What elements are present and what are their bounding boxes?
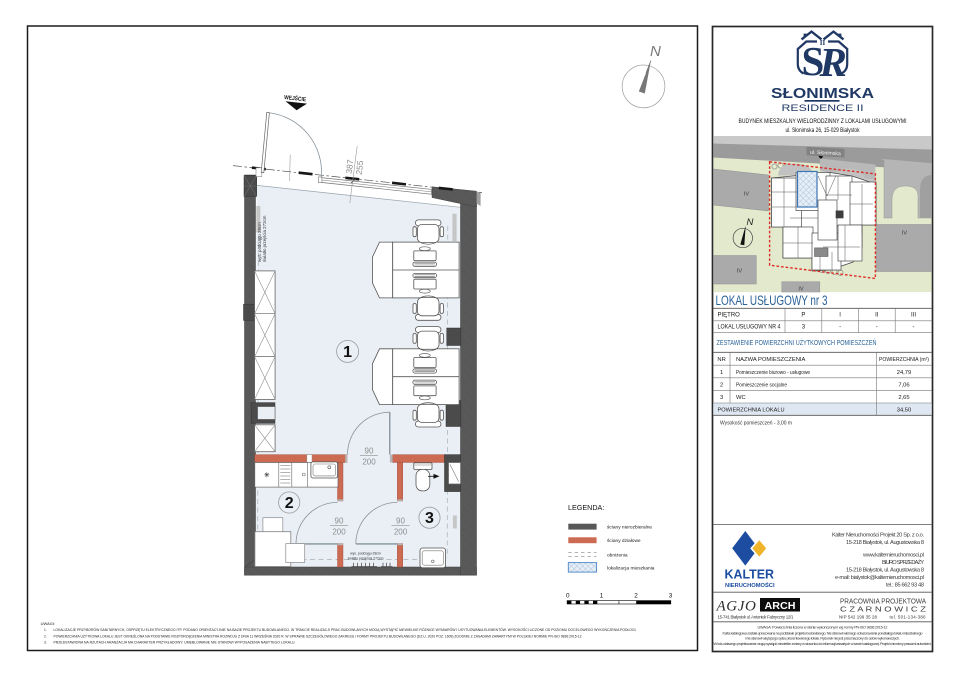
svg-text:wys. podciągu 28cm: wys. podciągu 28cm xyxy=(350,552,381,556)
svg-text:NR: NR xyxy=(717,357,725,363)
svg-text:200: 200 xyxy=(332,528,346,537)
svg-text:e-mail: bialystok@kalternieruc: e-mail: bialystok@kalternieruchomosci.pl xyxy=(835,575,924,581)
svg-text:P: P xyxy=(801,313,805,319)
svg-text:ściany działowe: ściany działowe xyxy=(607,538,641,544)
svg-text:NIP 542 199 35 28: NIP 542 199 35 28 xyxy=(839,615,878,620)
svg-text:SŁONIMSKA: SŁONIMSKA xyxy=(771,86,875,102)
svg-text:-: - xyxy=(913,325,915,331)
svg-text:POWIERZCHNIA LOKALU: POWIERZCHNIA LOKALU xyxy=(718,408,785,414)
svg-text:2: 2 xyxy=(720,382,723,388)
svg-text:Pomieszczenie socjalne: Pomieszczenie socjalne xyxy=(736,382,787,388)
svg-text:NIERUCHOMOŚCI: NIERUCHOMOŚCI xyxy=(725,582,775,589)
svg-text:POWIERZCHNIA (m²): POWIERZCHNIA (m²) xyxy=(879,357,929,363)
svg-text:II: II xyxy=(820,39,826,47)
svg-text:3: 3 xyxy=(669,593,673,600)
svg-text:II: II xyxy=(875,313,879,319)
svg-text:BUDYNEK MIESZKALNY WIELORODZIN: BUDYNEK MIESZKALNY WIELORODZINNY Z LOKAL… xyxy=(739,118,907,125)
svg-text:tel.: 85 662 93 48: tel.: 85 662 93 48 xyxy=(886,582,924,588)
svg-text:www.kalternieruchomosci.pl: www.kalternieruchomosci.pl xyxy=(862,552,924,558)
svg-text:N: N xyxy=(747,217,754,228)
svg-text:IV: IV xyxy=(902,231,908,237)
svg-text:IV: IV xyxy=(798,286,804,292)
svg-text:Pomieszczenie biurowo - usługo: Pomieszczenie biurowo - usługowe xyxy=(736,370,810,376)
svg-text:i nie stanowi wiążącego opisu: i nie stanowi wiążącego opisu prezentowa… xyxy=(745,637,900,641)
svg-text:1: 1 xyxy=(720,370,723,376)
svg-text:-: - xyxy=(839,325,841,331)
svg-text:W toku dalszego projektowania: W toku dalszego projektowania mogą wystą… xyxy=(714,642,932,646)
svg-text:ZESTAWIENIE POWIERZCHNI UŻYTKO: ZESTAWIENIE POWIERZCHNI UŻYTKOWYCH POMIE… xyxy=(717,338,877,347)
svg-text:LOKAL USŁUGOWY nr 3: LOKAL USŁUGOWY nr 3 xyxy=(716,293,828,308)
svg-text:Kalter Nieruchomości Projekt 2: Kalter Nieruchomości Projekt 20 Sp. z o.… xyxy=(832,533,924,539)
svg-text:15-741 Białystok ul. Antoniu: 15-741 Białystok ul. Antoniuk Fabryczny … xyxy=(718,615,795,620)
svg-text:C Z A R N O W I C Z: C Z A R N O W I C Z xyxy=(840,605,927,614)
svg-text:15-218 Białystok, ul. Augustow: 15-218 Białystok, ul. Augustowska 8 xyxy=(846,567,924,573)
svg-text:2,65: 2,65 xyxy=(898,395,909,401)
svg-text:90: 90 xyxy=(396,517,405,526)
svg-text:KALTER: KALTER xyxy=(725,567,775,582)
svg-text:15-218 Białystok, ul. Augustow: 15-218 Białystok, ul. Augustowska 8 xyxy=(846,540,924,546)
svg-text:IV: IV xyxy=(744,192,750,198)
svg-text:34,50: 34,50 xyxy=(897,408,912,414)
svg-text:światło przejścia 272cm: światło przejścia 272cm xyxy=(262,215,267,262)
svg-text:WC: WC xyxy=(736,395,746,401)
svg-text:NAZWA POMIESZCZENIA: NAZWA POMIESZCZENIA xyxy=(736,357,805,363)
svg-text:ul. Słonimska 26, 15-029 Biały: ul. Słonimska 26, 15-029 Białystok xyxy=(786,127,861,134)
svg-text:90: 90 xyxy=(365,447,374,456)
svg-text:ściany nierozbieralne: ściany nierozbieralne xyxy=(607,525,652,531)
svg-text:ARCH: ARCH xyxy=(765,600,796,612)
svg-text:PRZEDSTAWIONA NA RZUTACH ARANŻ: PRZEDSTAWIONA NA RZUTACH ARANŻACJA MA CH… xyxy=(54,640,296,645)
svg-text:Wysokość pomieszczeń - 3,00 m: Wysokość pomieszczeń - 3,00 m xyxy=(720,421,792,427)
svg-text:90: 90 xyxy=(335,517,344,526)
svg-text:LEGENDA:: LEGENDA: xyxy=(568,503,604,512)
svg-text:7,06: 7,06 xyxy=(898,382,909,388)
svg-text:PIĘTRO: PIĘTRO xyxy=(718,313,741,319)
svg-text:obniżenia: obniżenia xyxy=(607,552,628,558)
svg-text:3.: 3. xyxy=(44,641,47,645)
svg-text:III: III xyxy=(911,313,916,319)
svg-text:2: 2 xyxy=(285,495,294,512)
svg-text:2.: 2. xyxy=(44,634,47,638)
svg-text:światło przejścia 272cm: światło przejścia 272cm xyxy=(348,556,384,560)
svg-text:N: N xyxy=(650,43,661,60)
svg-text:200: 200 xyxy=(394,528,408,537)
svg-text:3: 3 xyxy=(425,510,434,527)
svg-text:-: - xyxy=(876,325,878,331)
svg-text:LOKALIZACJE PRZYBORÓW SANITARN: LOKALIZACJE PRZYBORÓW SANITARNYCH, OSPRZ… xyxy=(54,627,637,632)
svg-text:200: 200 xyxy=(362,458,376,467)
svg-text:LOKAL USŁUGOWY NR 4: LOKAL USŁUGOWY NR 4 xyxy=(718,325,782,331)
svg-text:2: 2 xyxy=(634,593,638,600)
svg-text:UWAGI:: UWAGI: xyxy=(41,621,56,626)
svg-text:IV: IV xyxy=(737,269,743,275)
svg-text:0: 0 xyxy=(566,593,570,600)
svg-text:255: 255 xyxy=(354,160,366,176)
svg-text:lokalizacja mieszkania: lokalizacja mieszkania xyxy=(607,566,655,572)
svg-text:UWAGA: Powierzchnia liczona: UWAGA: Powierzchnia liczona w stanie wyk… xyxy=(758,626,888,630)
svg-text:3: 3 xyxy=(720,395,723,401)
svg-text:24,79: 24,79 xyxy=(897,370,912,376)
svg-text:1.: 1. xyxy=(44,628,47,632)
svg-text:tel. 501-134-380: tel. 501-134-380 xyxy=(890,615,927,620)
svg-text:BIURO SPRZEDAŻY: BIURO SPRZEDAŻY xyxy=(882,559,924,566)
svg-text:Karta katalogowa została oprac: Karta katalogowa została opracowana na p… xyxy=(723,631,923,635)
svg-text:RESIDENCE II: RESIDENCE II xyxy=(782,103,864,113)
svg-text:1: 1 xyxy=(600,593,604,600)
svg-text:POWIERZCHNIA UŻYTKOWA LOKALU J: POWIERZCHNIA UŻYTKOWA LOKALU JEST OKREŚL… xyxy=(54,633,582,638)
svg-text:1: 1 xyxy=(343,344,352,361)
svg-text:AGJO: AGJO xyxy=(716,599,757,615)
